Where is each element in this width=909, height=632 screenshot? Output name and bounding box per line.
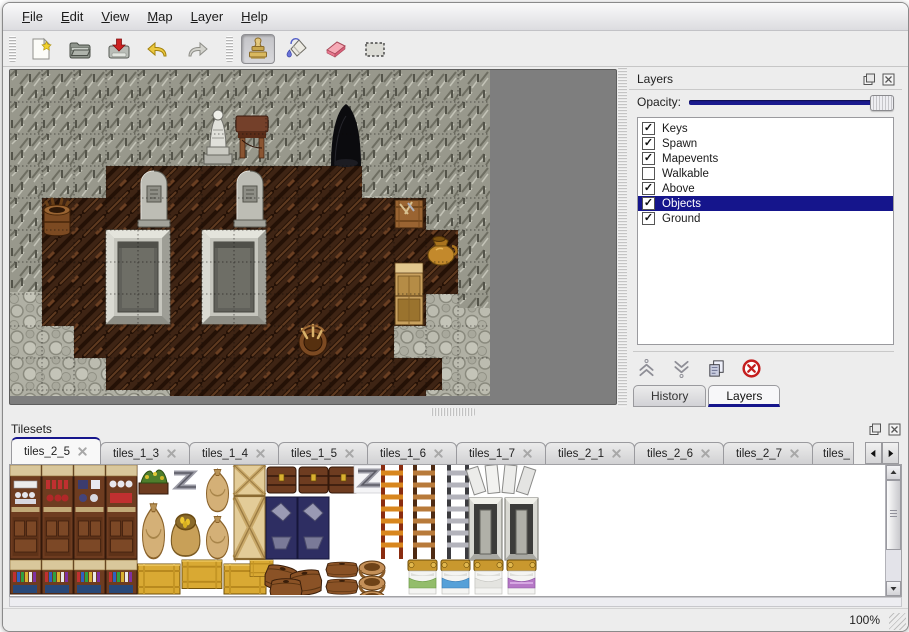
layer-row-keys[interactable]: ✓Keys [638,121,893,136]
open-folder-icon [67,36,93,62]
tileset-tab-label: tiles_1_7 [469,448,515,460]
horizontal-splitter[interactable] [3,407,908,417]
delete-layer-button[interactable] [738,356,764,380]
open-button[interactable] [63,34,97,64]
layers-panel: Layers Opacity: ✓Keys✓Spawn✓MapeventsWal… [629,67,902,407]
layer-name: Objects [662,198,701,210]
toolbar-grip[interactable] [226,36,233,62]
dock-tabs: HistoryLayers [633,383,782,407]
opacity-slider[interactable] [689,94,894,110]
layer-name: Mapevents [662,153,718,165]
tab-close-icon[interactable] [789,448,800,459]
float-panel-icon[interactable] [868,422,883,437]
move-layer-down-button[interactable] [668,356,694,380]
chevrons-down-icon [671,358,692,379]
tileset-vertical-scrollbar[interactable] [885,465,901,596]
chevrons-up-icon [636,358,657,379]
tileset-tab-tiles_2_1[interactable]: tiles_2_1 [545,442,635,465]
opacity-slider-handle[interactable] [870,95,894,111]
layer-visibility-checkbox[interactable]: ✓ [642,137,655,150]
menu-item-help[interactable]: Help [232,7,277,26]
move-layer-up-button[interactable] [633,356,659,380]
tileset-canvas[interactable] [10,465,872,595]
layer-visibility-checkbox[interactable] [642,167,655,180]
tab-scroll-right-icon[interactable] [882,442,899,464]
tileset-tab-label: tiles_2_1 [558,448,604,460]
zoom-level: 100% [849,613,880,627]
undo-button[interactable] [141,34,175,64]
layer-visibility-checkbox[interactable]: ✓ [642,122,655,135]
tileset-tab-tiles_1_5[interactable]: tiles_1_5 [278,442,368,465]
map-object-gravestone-2[interactable] [234,171,266,229]
new-file-icon [28,36,54,62]
map-object-barrel-with-tools[interactable] [299,325,327,356]
tileset-tab-label: tiles_2_5 [24,446,70,458]
layer-visibility-checkbox[interactable]: ✓ [642,197,655,210]
layer-row-mapevents[interactable]: ✓Mapevents [638,151,893,166]
tab-close-icon[interactable] [166,448,177,459]
layer-name: Walkable [662,168,709,180]
map-viewport[interactable] [9,69,617,405]
close-panel-icon[interactable] [881,72,896,87]
layer-name: Keys [662,123,688,135]
tileset-tab-label: tiles_2_6 [647,448,693,460]
opacity-label: Opacity: [637,95,681,109]
scroll-down-icon[interactable] [886,581,901,596]
toolbar-group [226,34,392,64]
layer-row-spawn[interactable]: ✓Spawn [638,136,893,151]
tileset-horizontal-scrollbar[interactable] [9,597,902,607]
layer-visibility-checkbox[interactable]: ✓ [642,152,655,165]
tab-close-icon[interactable] [344,448,355,459]
tilesets-panel-title: Tilesets [11,422,864,436]
tileset-tabs: tiles_2_5tiles_1_3tiles_1_4tiles_1_5tile… [11,436,860,465]
tileset-tab-tiles_2_5[interactable]: tiles_2_5 [11,437,101,465]
save-icon [106,36,132,62]
eraser-tool-icon [323,36,349,62]
tilesets-panel: Tilesets tiles_2_5tiles_1_3tiles_1_4tile… [3,417,908,608]
layer-list[interactable]: ✓Keys✓Spawn✓MapeventsWalkable✓Above✓Obje… [637,117,894,345]
layer-row-above[interactable]: ✓Above [638,181,893,196]
layer-row-walkable[interactable]: Walkable [638,166,893,181]
layer-name: Spawn [662,138,697,150]
tab-close-icon[interactable] [700,448,711,459]
select-tool-icon [362,36,388,62]
duplicate-icon [706,358,727,379]
tileset-tab-tiles_2_6[interactable]: tiles_2_6 [634,442,724,465]
menu-item-map[interactable]: Map [138,7,181,26]
tileset-tab-tiles_2_7[interactable]: tiles_2_7 [723,442,813,465]
tileset-tab-tiles_1_7[interactable]: tiles_1_7 [456,442,546,465]
tab-close-icon[interactable] [522,448,533,459]
fill-tool-icon [284,36,310,62]
redo-button[interactable] [180,34,214,64]
layer-actions [633,351,894,382]
scroll-up-icon[interactable] [886,465,901,480]
tab-history[interactable]: History [633,385,706,407]
menu-item-file[interactable]: File [13,7,52,26]
tileset-tab-label: tiles_ [823,448,850,460]
undo-icon [145,36,171,62]
tab-close-icon[interactable] [77,446,88,457]
tab-close-icon[interactable] [611,448,622,459]
vertical-splitter[interactable] [618,67,627,407]
tileset-tab-tiles[interactable]: tiles_ [812,442,854,465]
layer-name: Ground [662,213,700,225]
toolbar-group [9,34,214,64]
tileset-tab-tiles_1_3[interactable]: tiles_1_3 [100,442,190,465]
duplicate-layer-button[interactable] [703,356,729,380]
redo-icon [184,36,210,62]
tab-close-icon[interactable] [255,448,266,459]
tileset-tab-label: tiles_1_6 [380,448,426,460]
tab-scroll-left-icon[interactable] [865,442,882,464]
tileset-tab-label: tiles_1_5 [291,448,337,460]
map-object-altar-2[interactable] [202,230,266,324]
main-area: Layers Opacity: ✓Keys✓Spawn✓MapeventsWal… [3,67,908,407]
tab-layers[interactable]: Layers [708,385,780,407]
fill-tool-button[interactable] [280,34,314,64]
layers-panel-title: Layers [637,72,858,86]
opacity-slider-track[interactable] [689,100,894,105]
tab-close-icon[interactable] [433,448,444,459]
layer-row-ground[interactable]: ✓Ground [638,211,893,226]
menu-item-layer[interactable]: Layer [182,7,233,26]
tab-scroll-buttons [865,442,899,464]
tileset-content [9,464,902,597]
new-button[interactable] [24,34,58,64]
map-canvas[interactable] [10,70,490,396]
select-tool-button[interactable] [358,34,392,64]
menu-item-edit[interactable]: Edit [52,7,92,26]
eraser-tool-button[interactable] [319,34,353,64]
layer-name: Above [662,183,695,195]
layer-visibility-checkbox[interactable]: ✓ [642,212,655,225]
tileset-tab-label: tiles_2_7 [736,448,782,460]
stamp-tool-icon [245,36,271,62]
status-bar: 100% [3,608,908,632]
divider [629,89,902,90]
tileset-tab-label: tiles_1_3 [113,448,159,460]
delete-icon [741,358,762,379]
layer-row-objects[interactable]: ✓Objects [638,196,893,211]
app-window: FileEditViewMapLayerHelp [2,2,909,632]
map-object-gravestone-1[interactable] [138,171,170,229]
menu-item-view[interactable]: View [92,7,138,26]
toolbar-grip[interactable] [9,36,16,62]
stamp-tool-button[interactable] [241,34,275,64]
scrollbar-thumb[interactable] [886,480,901,550]
tileset-tab-label: tiles_1_4 [202,448,248,460]
tileset-tab-tiles_1_6[interactable]: tiles_1_6 [367,442,457,465]
save-button[interactable] [102,34,136,64]
tileset-tab-tiles_1_4[interactable]: tiles_1_4 [189,442,279,465]
menu-bar: FileEditViewMapLayerHelp [3,3,908,31]
float-panel-icon[interactable] [862,72,877,87]
resize-grip-icon[interactable] [889,613,906,630]
layer-visibility-checkbox[interactable]: ✓ [642,182,655,195]
map-object-crate[interactable] [395,200,423,228]
toolbar [3,31,908,67]
horizontal-splitter-grip[interactable] [431,408,475,416]
close-panel-icon[interactable] [887,422,902,437]
map-object-altar-1[interactable] [106,230,170,324]
